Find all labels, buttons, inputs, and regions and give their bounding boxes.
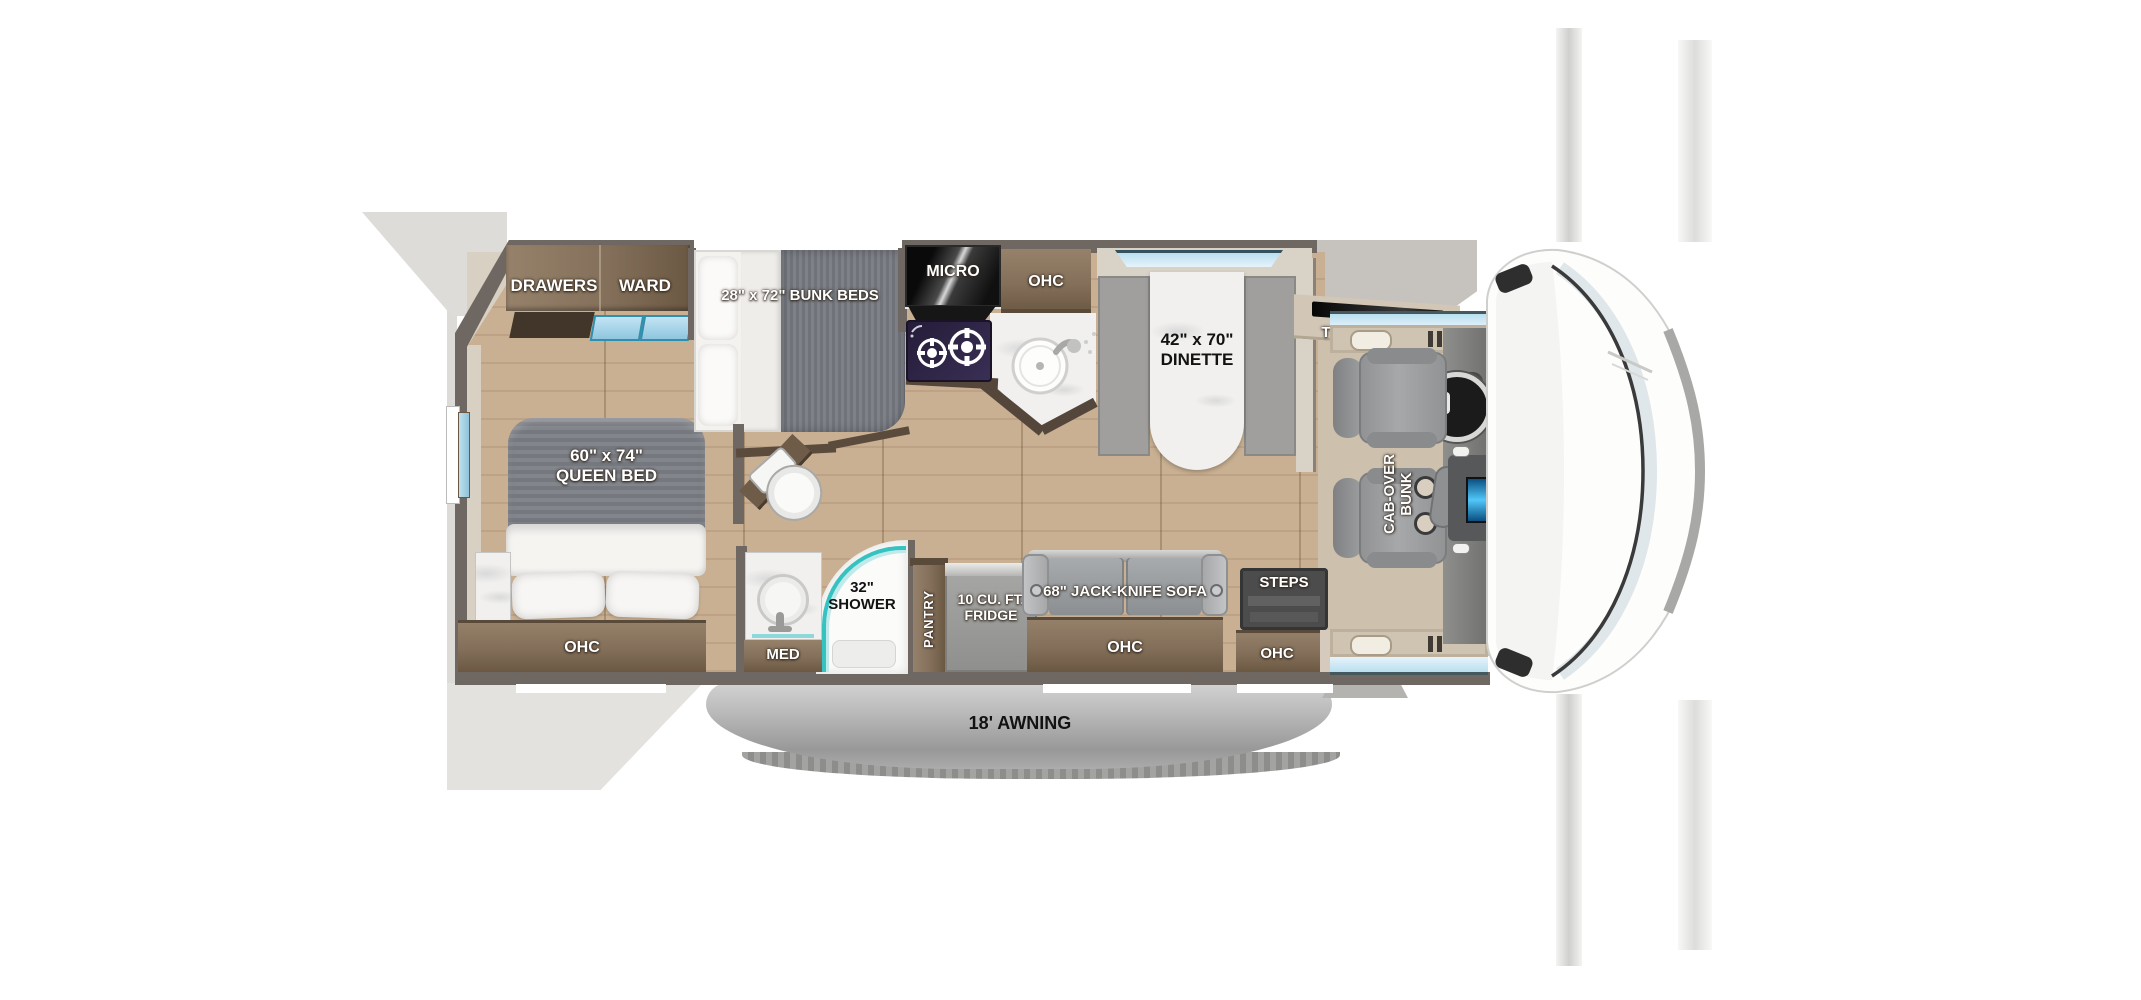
drawers-label: DRAWERS	[506, 277, 602, 295]
shower-tray	[832, 640, 896, 668]
bunk-beds-label: 28" x 72" BUNK BEDS	[698, 286, 902, 306]
kitchen-ohc-label: OHC	[1001, 272, 1091, 292]
awning-label: 18' AWNING	[900, 712, 1140, 734]
bath-faucet-icon	[768, 626, 792, 632]
slideout-shadow	[447, 683, 703, 790]
cab-over-bunk-label: CAB-OVER BUNK	[1380, 444, 1416, 544]
bottom-strip	[1043, 684, 1191, 693]
door-handle	[1350, 635, 1392, 656]
dinette-window	[1115, 250, 1283, 267]
micro-label: MICRO	[905, 262, 1001, 282]
sofa-label: 68" JACK-KNIFE SOFA	[1028, 583, 1222, 601]
door-pillar	[1428, 636, 1433, 652]
nightstand	[475, 552, 511, 622]
door-pillar	[1428, 331, 1433, 347]
sink-icon	[1013, 332, 1096, 393]
entry-ohc-label: OHC	[1232, 645, 1322, 663]
dinette-bench	[1098, 276, 1150, 456]
door-pillar	[1437, 636, 1442, 652]
bottom-strip	[1237, 684, 1333, 693]
bunk-window-strip	[694, 236, 902, 250]
bottom-strip	[516, 684, 666, 693]
dinette-label: 42" x 70" DINETTE	[1150, 328, 1244, 372]
step-tread	[1248, 596, 1320, 606]
drawers-counter	[509, 312, 595, 338]
ward-label: WARD	[600, 277, 690, 295]
queen-bed-label: 60" x 74" QUEEN BED	[508, 444, 705, 488]
bunk-sheet	[741, 252, 781, 430]
bed-ohc-label: OHC	[458, 638, 706, 658]
dinette-pillar	[1296, 258, 1316, 472]
dinette-bench	[1244, 276, 1296, 456]
steps-label: STEPS	[1240, 574, 1328, 592]
shower-label: 32" SHOWER	[818, 576, 906, 616]
bedroom-window-glass	[458, 412, 470, 498]
hood-shade	[1496, 262, 1564, 680]
sofa-ohc-label: OHC	[1027, 638, 1223, 658]
front-wheel	[1322, 685, 1408, 698]
rv-floorplan: 18' AWNING DRAWERS WARD 60" x 74" QUEEN …	[0, 0, 2141, 1000]
vanity-accent	[752, 634, 814, 638]
step-tread	[1250, 612, 1318, 622]
bath-left-wall	[733, 424, 744, 524]
cooktop-burners-and-sink	[900, 310, 1100, 440]
med-label: MED	[744, 646, 822, 664]
queen-pillow	[605, 570, 700, 619]
queen-pillow	[511, 570, 606, 619]
door-pillar	[1437, 331, 1442, 347]
burner-icon	[911, 326, 987, 368]
driver-seat	[1333, 352, 1449, 444]
ward-glass-door	[640, 315, 694, 341]
pantry-label: PANTRY	[921, 569, 937, 669]
bunk-mattress	[781, 250, 905, 432]
bunk-pillow	[698, 344, 738, 426]
ward-glass-door	[590, 315, 645, 341]
queen-blanket	[506, 524, 706, 576]
